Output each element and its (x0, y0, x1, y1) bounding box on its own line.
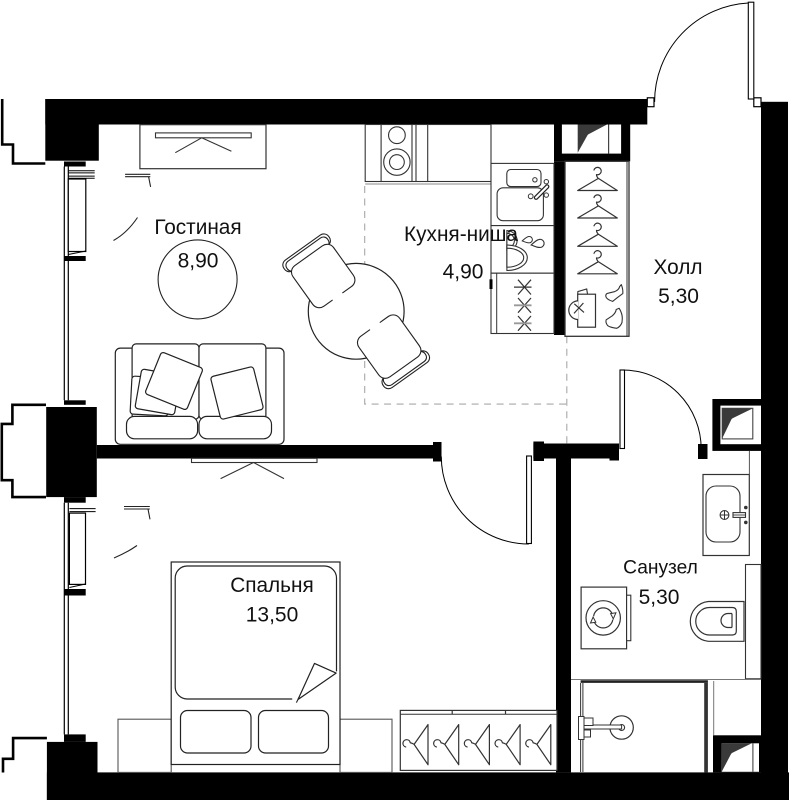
svg-text:Спальня: Спальня (230, 574, 314, 597)
svg-text:4,90: 4,90 (443, 261, 484, 284)
svg-text:8,90: 8,90 (178, 250, 219, 273)
svg-text:13,50: 13,50 (246, 604, 299, 627)
svg-text:5,30: 5,30 (639, 586, 680, 609)
svg-text:Кухня-ниша: Кухня-ниша (404, 223, 518, 246)
svg-text:5,30: 5,30 (658, 285, 699, 308)
svg-text:Гостиная: Гостиная (154, 216, 241, 239)
svg-text:Санузел: Санузел (623, 558, 698, 579)
svg-text:Холл: Холл (653, 256, 702, 279)
